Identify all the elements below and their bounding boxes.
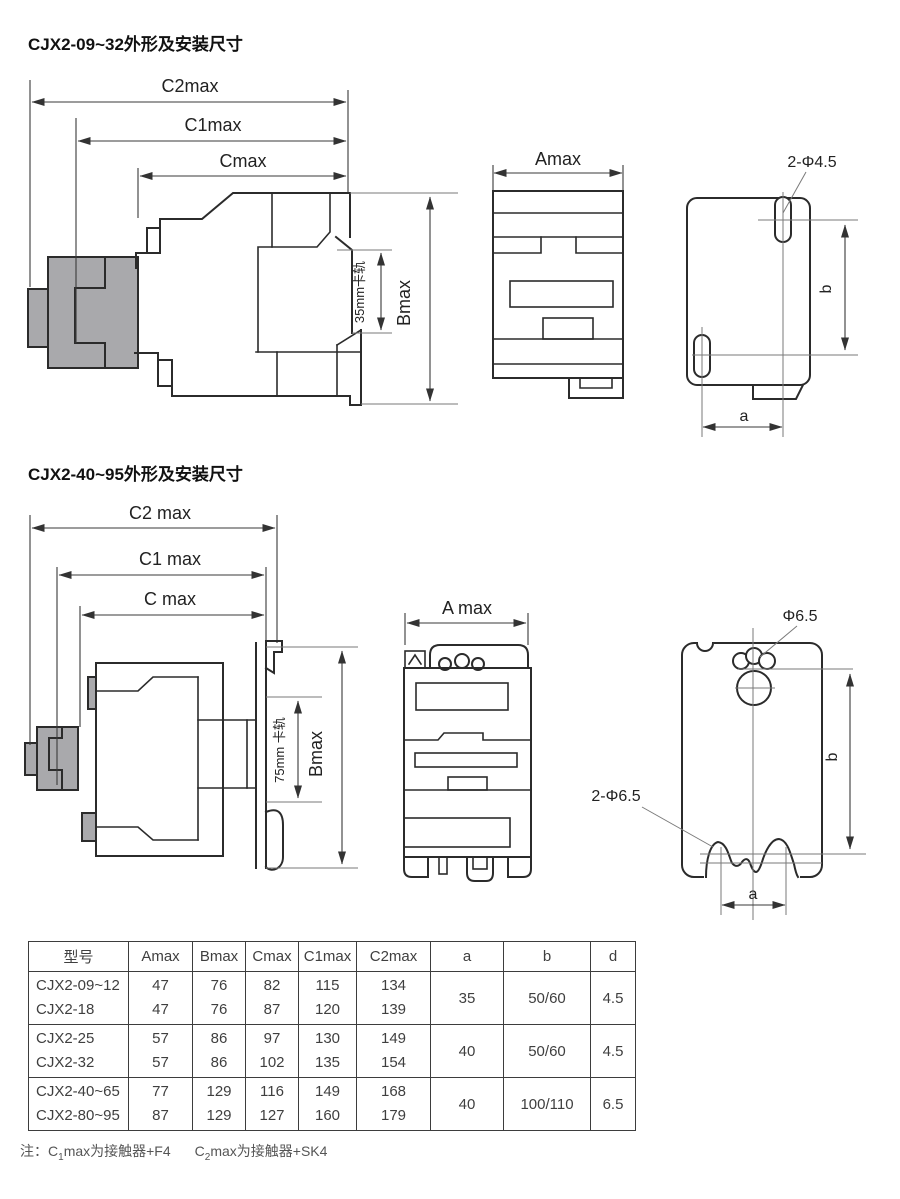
- a-cell: 40: [431, 1025, 504, 1078]
- a-label: a: [740, 408, 749, 425]
- rail-label: 35mm卡轨: [352, 261, 367, 323]
- cmax-cell: 8287: [246, 972, 299, 1025]
- amax-label: A max: [442, 598, 492, 618]
- c2max-label: C2max: [161, 76, 218, 96]
- cmax-cell: 97102: [246, 1025, 299, 1078]
- c1max-cell: 115120: [299, 972, 357, 1025]
- table-row: CJX2-40~65CJX2-80~95 7787 129129 116127 …: [29, 1078, 636, 1131]
- a-cell: 35: [431, 972, 504, 1025]
- c2max-cell: 168179: [357, 1078, 431, 1131]
- d-cell: 6.5: [591, 1078, 636, 1131]
- footnote-part3: C: [195, 1143, 205, 1159]
- footnote-part4: max为接触器+SK4: [210, 1143, 327, 1159]
- contactor-body: [82, 663, 256, 856]
- rail-dimension: 35mm卡轨: [337, 250, 392, 333]
- rail-label: 75mm 卡轨: [272, 717, 287, 783]
- hole-top-label: Φ6.5: [782, 608, 817, 625]
- col-header-model: 型号: [29, 942, 129, 972]
- feet: [404, 857, 531, 881]
- model-cell: CJX2-25CJX2-32: [29, 1025, 129, 1078]
- section1-title: CJX2-09~32外形及安装尺寸: [28, 30, 243, 55]
- bmax-cell: 8686: [193, 1025, 246, 1078]
- section2-title: CJX2-40~95外形及安装尺寸: [28, 460, 243, 485]
- col-header-c2max: C2max: [357, 942, 431, 972]
- a-cell: 40: [431, 1078, 504, 1131]
- table-row: CJX2-09~12CJX2-18 4747 7676 8287 115120 …: [29, 972, 636, 1025]
- side-view-40-95: 75mm 卡轨 Bmax C2 max C1 max C max: [25, 503, 358, 870]
- amax-cell: 5757: [129, 1025, 193, 1078]
- accessory-blocks: [28, 257, 138, 368]
- c1max-label: C1max: [184, 115, 241, 135]
- amax-cell: 4747: [129, 972, 193, 1025]
- cmax-label: C max: [144, 589, 196, 609]
- c1max-label: C1 max: [139, 549, 201, 569]
- c2max-cell: 149154: [357, 1025, 431, 1078]
- dimensions-table: 型号 Amax Bmax Cmax C1max C2max a b d CJX2…: [28, 941, 636, 1131]
- contactor-body: [135, 193, 361, 405]
- col-header-c1max: C1max: [299, 942, 357, 972]
- side-view-09-32: 35mm卡轨 Bmax C2max C1max Cmax: [28, 76, 458, 405]
- model-cell: CJX2-09~12CJX2-18: [29, 972, 129, 1025]
- b-cell: 100/110: [504, 1078, 591, 1131]
- section2-drawings: 75mm 卡轨 Bmax C2 max C1 max C max A max: [0, 495, 900, 935]
- bmax-cell: 7676: [193, 972, 246, 1025]
- amax-cell: 7787: [129, 1078, 193, 1131]
- bmax-label: Bmax: [306, 731, 326, 777]
- footnote-part2: max为接触器+F4: [64, 1143, 171, 1159]
- datasheet-page: { "section1": { "title": "CJX2-09~32外形及安…: [0, 0, 900, 1199]
- bmax-cell: 129129: [193, 1078, 246, 1131]
- section1-drawings: 35mm卡轨 Bmax C2max C1max Cmax Amax: [0, 65, 900, 465]
- c-dimensions: C2max C1max Cmax: [32, 76, 346, 176]
- b-dimension: b: [818, 225, 845, 350]
- col-header-cmax: Cmax: [246, 942, 299, 972]
- c2max-label: C2 max: [129, 503, 191, 523]
- b-label: b: [818, 284, 835, 293]
- col-header-amax: Amax: [129, 942, 193, 972]
- d-cell: 4.5: [591, 972, 636, 1025]
- accessory-blocks: [25, 727, 78, 790]
- col-header-d: d: [591, 942, 636, 972]
- col-header-a: a: [431, 942, 504, 972]
- c-dimensions: C2 max C1 max C max: [32, 503, 275, 615]
- a-dimension: a: [722, 886, 785, 905]
- a-dimension: a: [703, 408, 782, 427]
- b-label: b: [824, 752, 841, 761]
- cmax-label: Cmax: [219, 151, 266, 171]
- amax-label: Amax: [535, 149, 581, 169]
- bmax-label: Bmax: [394, 280, 414, 326]
- model-cell: CJX2-40~65CJX2-80~95: [29, 1078, 129, 1131]
- d-cell: 4.5: [591, 1025, 636, 1078]
- mount-view-40-95: Φ6.5 2-Φ6.5 b a: [591, 608, 866, 920]
- footnote-part1: 注：C: [20, 1143, 58, 1159]
- col-header-b: b: [504, 942, 591, 972]
- mount-view-09-32: 2-Φ4.5 b a: [687, 154, 858, 437]
- c2max-cell: 134139: [357, 972, 431, 1025]
- b-cell: 50/60: [504, 972, 591, 1025]
- a-label: a: [749, 886, 758, 903]
- footnote: 注：C1max为接触器+F4C2max为接触器+SK4: [20, 1141, 327, 1163]
- c1max-cell: 130135: [299, 1025, 357, 1078]
- b-dimension: b: [824, 674, 850, 849]
- col-header-bmax: Bmax: [193, 942, 246, 972]
- front-view-40-95: A max: [404, 598, 531, 881]
- table-row: CJX2-25CJX2-32 5757 8686 97102 130135 14…: [29, 1025, 636, 1078]
- c1max-cell: 149160: [299, 1078, 357, 1131]
- front-view-09-32: Amax: [493, 149, 623, 398]
- cmax-cell: 116127: [246, 1078, 299, 1131]
- table-header-row: 型号 Amax Bmax Cmax C1max C2max a b d: [29, 942, 636, 972]
- holes-label: 2-Φ4.5: [787, 154, 836, 171]
- b-cell: 50/60: [504, 1025, 591, 1078]
- holes-bottom-label: 2-Φ6.5: [591, 788, 640, 805]
